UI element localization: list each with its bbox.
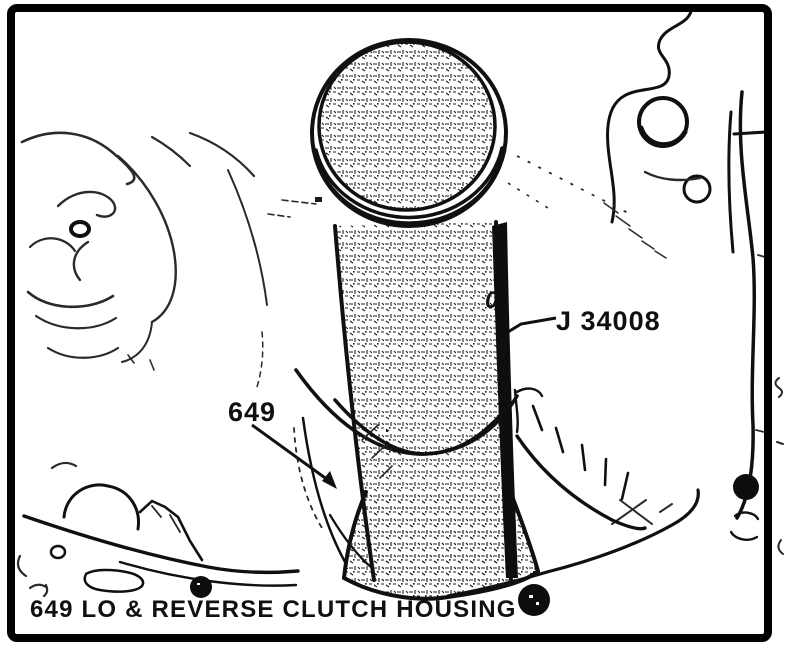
- clutch-housing-figure: J 34008 649 0 649 LO & REVERSE CLUTCH HO…: [0, 0, 800, 652]
- figure-caption: 649 LO & REVERSE CLUTCH HOUSING: [30, 596, 517, 623]
- bolt-head: [733, 474, 759, 500]
- tool-cap-face: [319, 42, 495, 210]
- case-right-casting: [604, 7, 766, 518]
- leader-arrowhead: [322, 471, 337, 489]
- small-hole: [51, 546, 65, 558]
- slot-hole: [85, 570, 143, 592]
- bolt-head: [190, 576, 212, 598]
- shaft-marking: 0: [485, 287, 499, 314]
- bolt-head: [518, 584, 550, 616]
- leader-line-part: [252, 425, 328, 480]
- housing-callout-label: 649: [228, 397, 276, 427]
- manual-figure-page: J 34008 649 0 649 LO & REVERSE CLUTCH HO…: [0, 0, 800, 652]
- leader-line-tool: [508, 318, 556, 332]
- spline-teeth: [533, 406, 628, 499]
- tool-part-number-label: J 34008: [556, 306, 661, 336]
- case-lobe: [64, 485, 138, 529]
- case-left-sketch: [22, 133, 322, 390]
- tool-driver: [312, 40, 538, 599]
